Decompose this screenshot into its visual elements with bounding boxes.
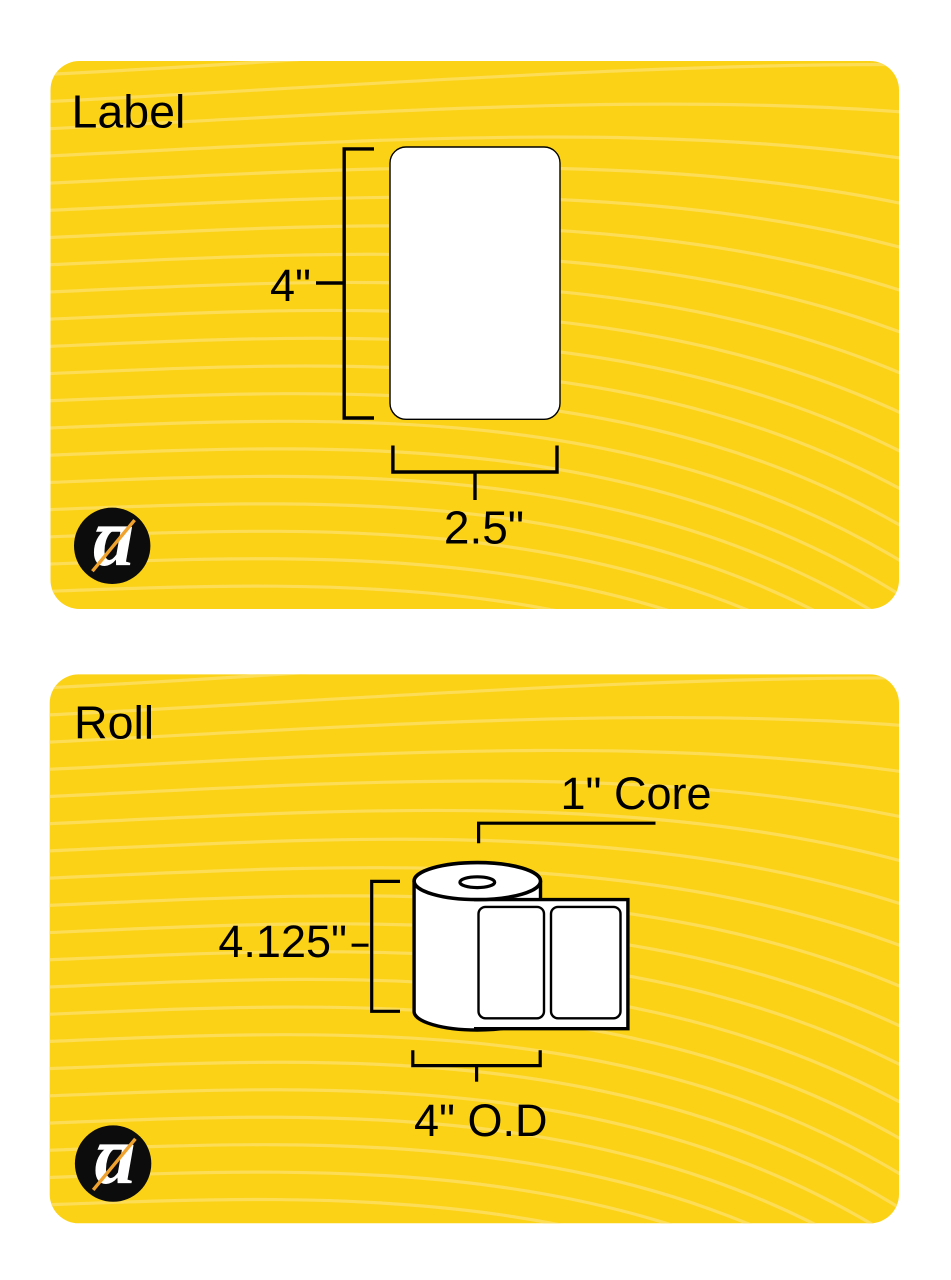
svg-text:Label: Label [72, 86, 186, 138]
svg-text:4" O.D: 4" O.D [414, 1095, 548, 1146]
svg-text:1" Core: 1" Core [561, 768, 712, 819]
svg-text:4": 4" [270, 260, 311, 311]
svg-text:4.125": 4.125" [218, 916, 347, 967]
svg-text:a: a [95, 1110, 136, 1201]
svg-text:2.5": 2.5" [444, 502, 524, 554]
svg-text:a: a [93, 492, 134, 583]
svg-text:Roll: Roll [74, 697, 154, 749]
